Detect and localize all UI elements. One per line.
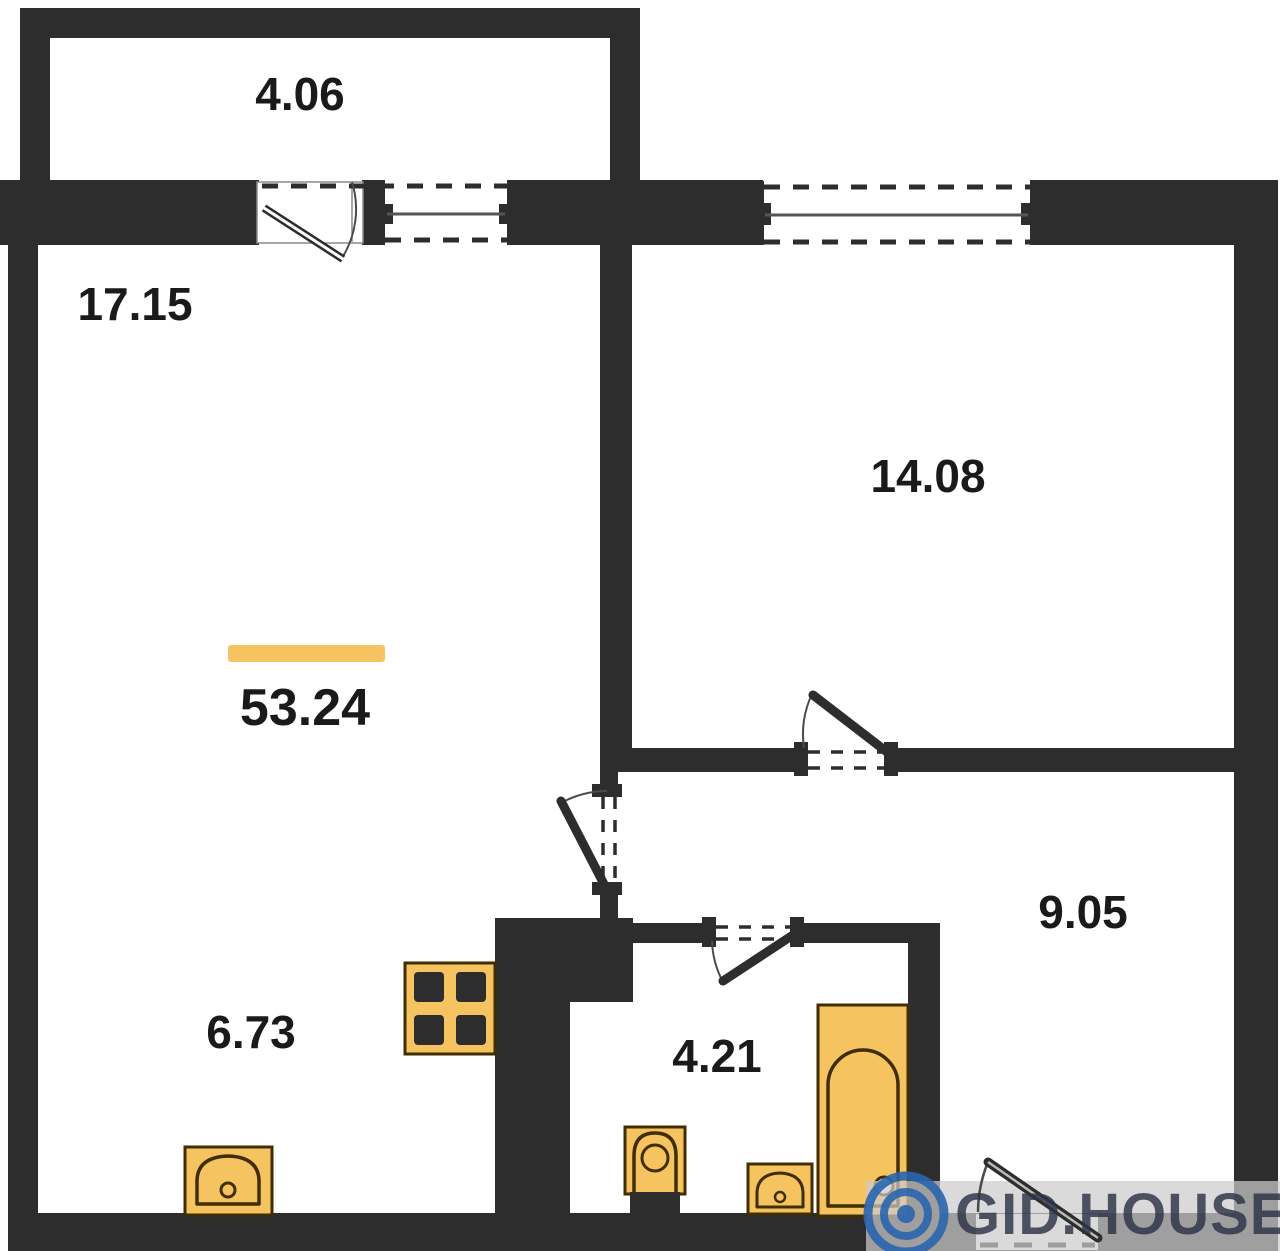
bedroom-door-leaf <box>813 695 887 752</box>
kitchen-wall-block <box>495 918 633 1002</box>
bathroom-wall-right <box>908 923 940 1215</box>
walls <box>0 8 1278 1251</box>
bathroom-wall-top <box>630 923 702 943</box>
north-wall-segment <box>0 180 259 245</box>
total-area-bar <box>228 645 385 662</box>
floor-plan-canvas: 4.06 17.15 14.08 53.24 9.05 6.73 4.21 GI… <box>0 0 1280 1251</box>
bedroom-bottom-wall <box>898 748 1234 772</box>
balcony-wall-left <box>20 8 50 180</box>
toilet-icon <box>625 1127 685 1194</box>
label-kitchen-area: 6.73 <box>206 1006 296 1058</box>
door-arcs <box>342 182 812 982</box>
label-total-area: 53.24 <box>240 679 370 737</box>
label-bathroom-area: 4.21 <box>672 1030 762 1082</box>
logo-center-dot <box>897 1205 915 1223</box>
label-living-room-area: 17.15 <box>77 278 192 330</box>
door-jamb <box>794 742 808 776</box>
balcony-wall-right <box>610 8 640 180</box>
bathroom-sink-icon <box>748 1164 812 1214</box>
toilet-tank <box>630 1192 680 1217</box>
left-wall <box>8 180 38 1250</box>
label-balcony-area: 4.06 <box>255 68 345 120</box>
door-leaves <box>264 208 887 981</box>
watermark-text: GID.HOUSE <box>955 1182 1280 1247</box>
burner <box>414 972 444 1002</box>
bathroom-wall-top <box>804 923 908 943</box>
door-jamb <box>702 917 716 947</box>
burner <box>456 972 486 1002</box>
kitchen-sink-icon <box>185 1147 272 1215</box>
bedroom-left-wall <box>600 245 632 772</box>
label-bedroom-area: 14.08 <box>870 450 985 502</box>
hall-wall <box>600 772 618 784</box>
bathroom-door-leaf <box>723 931 799 981</box>
label-hallway-area: 9.05 <box>1038 886 1128 938</box>
door-jamb <box>592 784 622 797</box>
balcony-wall-top <box>20 8 640 38</box>
bedroom-door-arc <box>803 694 812 748</box>
bathroom-door-arc <box>712 941 723 982</box>
burner <box>414 1015 444 1045</box>
north-wall-segment <box>507 180 763 245</box>
right-wall <box>1234 180 1278 1250</box>
bedroom-bottom-wall <box>614 748 794 772</box>
kitchen-wall-column <box>495 1002 570 1217</box>
hall-door-leaf <box>561 801 607 890</box>
burner <box>456 1015 486 1045</box>
floor-plan: 4.06 17.15 14.08 53.24 9.05 6.73 4.21 GI… <box>0 0 1280 1251</box>
